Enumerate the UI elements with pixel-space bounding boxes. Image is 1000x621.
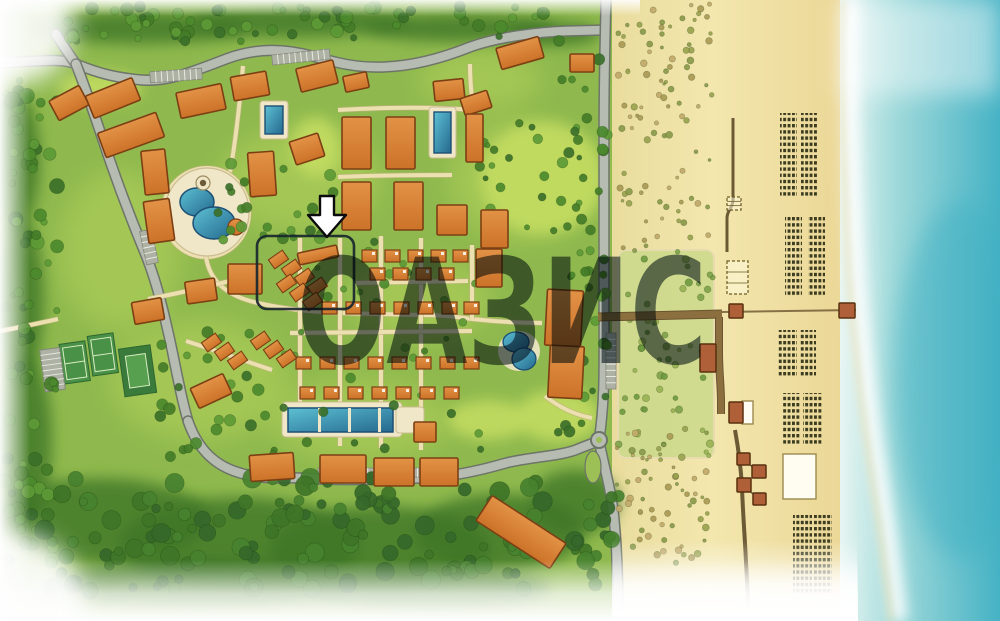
resort-map-screenshot: ОАЗИС	[0, 0, 1000, 621]
watermark-text: ОАЗИС	[297, 228, 707, 398]
resort-master-plan-map: ОАЗИС	[0, 0, 1000, 621]
